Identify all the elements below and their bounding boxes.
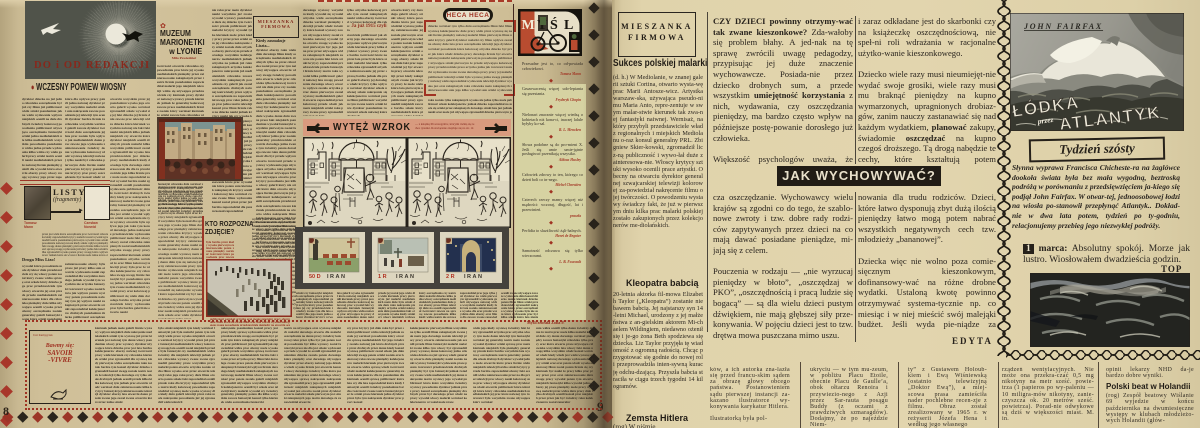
svg-text:1 R: 1 R (378, 274, 387, 280)
svg-text:Ś: Ś (550, 16, 558, 33)
svg-text:IRAN: IRAN (327, 274, 346, 280)
svg-text:IRAN: IRAN (396, 274, 415, 280)
svg-text:IRAN: IRAN (464, 274, 483, 280)
svg-text:M: M (522, 18, 535, 33)
svg-text:JOHN FAIRFAX: JOHN FAIRFAX (1023, 22, 1103, 31)
svg-text:2 R: 2 R (446, 274, 455, 280)
svg-text:50 D: 50 D (309, 274, 321, 280)
svg-text:L: L (564, 18, 573, 33)
